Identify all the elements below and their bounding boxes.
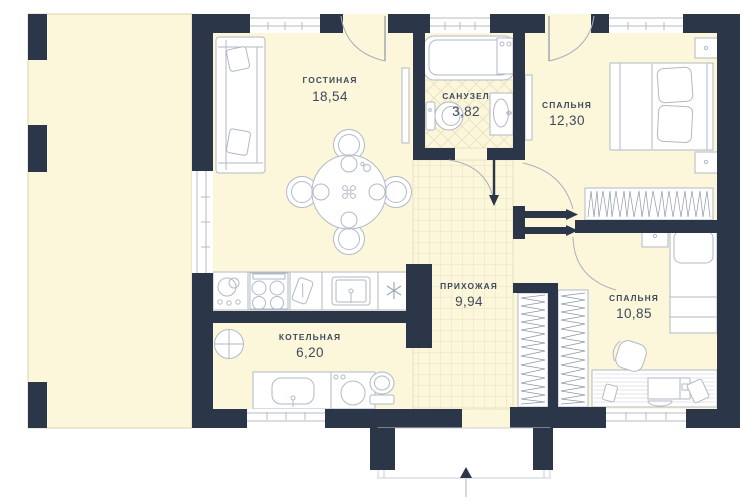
room-name-bedroom1: СПАЛЬНЯ xyxy=(542,100,592,110)
headboard xyxy=(707,63,713,150)
pillow xyxy=(674,231,713,263)
wardrobe xyxy=(585,188,713,220)
room-area-living: 18,54 xyxy=(312,89,348,104)
laptop-icon xyxy=(648,378,690,399)
porch xyxy=(370,428,553,497)
desk xyxy=(592,370,717,407)
single-bed xyxy=(670,227,717,333)
wardrobe xyxy=(518,293,548,407)
washing-machine-icon xyxy=(331,372,375,409)
kitchen-counter xyxy=(213,272,410,310)
porch-pillar xyxy=(533,428,553,470)
terrace-pillar xyxy=(28,125,47,172)
pillow xyxy=(657,105,693,143)
sofa-pillow xyxy=(226,46,250,72)
nightstand xyxy=(695,152,718,173)
room-area-boiler: 6,20 xyxy=(296,345,324,360)
room-area-bedroom1: 12,30 xyxy=(549,113,585,128)
vanity-sink xyxy=(490,93,513,135)
terrace xyxy=(28,14,192,428)
terrace-pillar xyxy=(28,382,47,428)
room-area-bathroom: 3,82 xyxy=(452,104,480,119)
window xyxy=(250,14,320,33)
floor-plan-canvas: ГОСТИНАЯ 18,54 САНУЗЕЛ 3,82 СПАЛЬНЯ 12,3… xyxy=(0,0,752,502)
window xyxy=(192,171,213,273)
dining-table xyxy=(312,155,386,229)
floor-plan: ГОСТИНАЯ 18,54 САНУЗЕЛ 3,82 СПАЛЬНЯ 12,3… xyxy=(0,0,752,502)
wall-panel xyxy=(402,68,409,143)
vanity-sink xyxy=(253,372,331,409)
wardrobe xyxy=(558,290,588,407)
sofa xyxy=(216,37,265,173)
window xyxy=(609,14,683,33)
terrace-pillar xyxy=(28,14,47,60)
nightstand xyxy=(695,38,718,58)
porch-pillar xyxy=(370,428,395,470)
room-area-bedroom2: 10,85 xyxy=(616,306,652,321)
room-name-hallway: ПРИХОЖАЯ xyxy=(440,281,498,291)
toilet-icon xyxy=(370,372,394,404)
room-name-boiler: КОТЕЛЬНАЯ xyxy=(279,332,341,342)
pillow xyxy=(657,67,693,103)
window xyxy=(606,409,686,428)
wall-panel xyxy=(525,75,532,140)
room-name-living: ГОСТИНАЯ xyxy=(302,75,357,85)
boiler-icon xyxy=(215,330,244,359)
sofa-pillow xyxy=(226,128,251,155)
window xyxy=(430,14,490,33)
window xyxy=(247,409,325,428)
double-bed xyxy=(610,63,713,150)
room-area-hallway: 9,94 xyxy=(455,294,483,309)
bathroom-cabinet xyxy=(497,38,513,74)
room-name-bedroom2: СПАЛЬНЯ xyxy=(609,293,659,303)
room-name-bathroom: САНУЗЕЛ xyxy=(442,91,490,101)
